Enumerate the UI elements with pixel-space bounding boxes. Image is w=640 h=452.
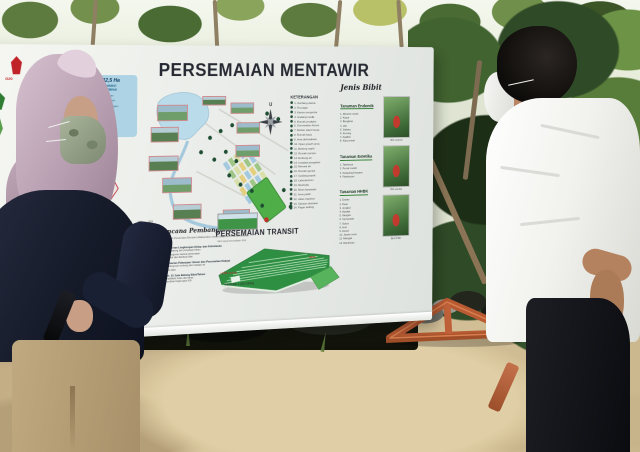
legend-label: 20. Mess karyawan [294,187,317,191]
legend-marker-icon [290,166,293,169]
legend-marker-icon [290,170,293,173]
seedling-category-title: Tanaman Estetika [340,154,372,160]
legend-marker-icon [290,120,293,123]
seedling-category-list: Tanaman Endemik1. Meranti merah2. Kapur3… [339,95,381,245]
legend-label: 11. Bedeng sapih [294,146,314,150]
legend-marker-icon [290,156,293,159]
transit-3d-render [213,238,342,303]
legend-label: 18. Laboratorium [294,178,314,182]
seedling-category-title: Tanaman Endemik [340,104,373,110]
legend-marker-icon [290,134,293,137]
legend-label: 10. Open growth area [294,142,319,146]
seedling-photo [383,145,410,187]
legend-label: 13. Embung air [294,156,312,160]
seedling-species: 12. Rambutan [339,239,380,244]
seedling-photo [383,96,410,138]
seedling-photo-caption: Bibit HHBK [382,237,409,241]
map-legend: KETERANGAN 1. Gerbang utama2. Pos jaga3.… [290,95,340,211]
legend-label: 5. Rumah produksi [294,119,316,123]
seedling-types-panel: Jenis Bibit Tanaman Endemik1. Meranti me… [339,83,412,248]
seedling-category: Tanaman HHBK1. Durian2. Petai3. Jengkol4… [339,181,381,245]
legend-label: 6. Germination house [294,124,319,128]
seedling-category-title: Tanaman HHBK [340,189,369,196]
legend-marker-icon [290,138,293,141]
person-man [470,20,640,452]
map-photo-thumbnail [230,102,254,113]
seedling-types-heading: Jenis Bibit [340,83,412,92]
legend-marker-icon [290,202,293,205]
woman-trousers [12,340,140,452]
legend-marker-icon [290,161,293,164]
legend-label: 15. Menara air [294,165,311,169]
legend-marker-icon [290,175,293,178]
map-photo-thumbnail [235,145,259,158]
legend-label: 19. Musholla [294,183,309,187]
person-woman [0,40,195,452]
legend-label: 14. Instalasi pengairan [294,160,320,164]
map-photo-thumbnail [202,96,226,106]
legend-label: 9. Area aklimatisasi [294,137,317,141]
seedling-category: Tanaman Endemik1. Meranti merah2. Kapur3… [340,95,382,143]
legend-list: 1. Gerbang utama2. Pos jaga3. Kantor pen… [290,101,340,211]
transit-mess-label: MESS [309,256,315,259]
legend-marker-icon [290,106,293,109]
seedling-species: 4. Flamboyan [340,174,381,179]
legend-label: 23. Saluran drainase [294,201,318,205]
legend-marker-icon [290,102,293,105]
legend-label: 17. Gudang pupuk [294,174,316,178]
legend-marker-icon [290,129,293,132]
legend-marker-icon [290,115,293,118]
man-hair [497,26,577,104]
legend-label: 16. Rumah genset [294,169,316,173]
legend-marker-icon [290,188,293,191]
legend-label: 2. Pos jaga [294,106,307,110]
seedling-photo-caption: Bibit estetika [383,188,410,191]
legend-marker-icon [290,152,293,155]
compass-rose-icon: U [257,102,285,138]
legend-marker-icon [290,111,293,114]
legend-marker-icon [290,184,293,187]
legend-heading: KETERANGAN [290,95,339,100]
legend-marker-icon [290,207,293,210]
seedling-species: 8. Kayu mirah [340,139,381,143]
legend-marker-icon [290,124,293,127]
legend-marker-icon [290,143,293,146]
legend-label: 7. Mother plant house [294,128,319,132]
legend-label: 8. Rumah kaca [294,133,312,137]
seedling-category: Tanaman Estetika1. Tabebuya2. Pucuk mera… [340,146,382,179]
legend-marker-icon [290,179,293,182]
legend-label: 1. Gerbang utama [294,101,315,105]
man-trousers [526,298,630,452]
legend-label: 12. Rumah pompa [294,151,316,155]
photo-scene: PERSEMAIAN MENTAWIR G20 LUAS 32,5 Ha Kap… [0,0,640,452]
legend-marker-icon [290,197,293,200]
legend-label: 4. Gudang media [294,115,314,119]
legend-label: 21. Area parkir [294,192,311,196]
woman-face-mask [60,116,106,164]
legend-marker-icon [290,147,293,150]
seedling-photo [382,194,409,237]
legend-marker-icon [290,193,293,196]
legend-label: 24. Pagar keliling [294,206,314,210]
legend-label: 3. Kantor pengelola [294,110,317,114]
seedling-photo-caption: Bibit endemik [383,139,410,142]
